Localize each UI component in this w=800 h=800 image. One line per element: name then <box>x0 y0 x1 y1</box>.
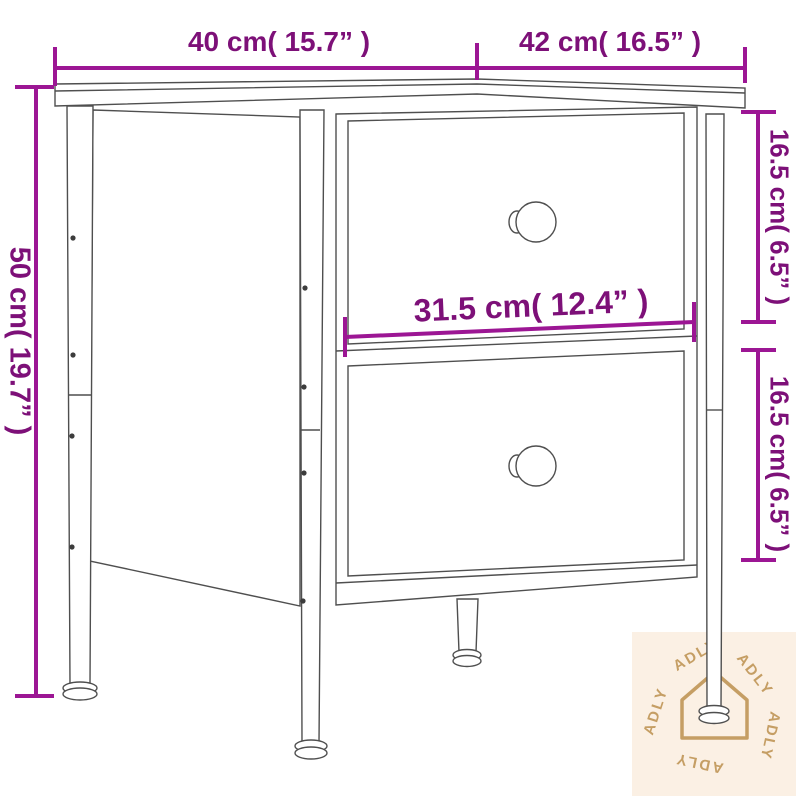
drawer-cabinet <box>336 107 697 605</box>
furniture-dimension-diagram: ADLY ADLY ADLY ADLY ADLY <box>0 0 800 800</box>
upper-drawer-height-dimension-label: 16.5 cm( 6.5” ) <box>764 129 795 305</box>
back-right-leg <box>453 599 481 667</box>
back-left-leg <box>63 106 97 700</box>
top-depth-dimension-label: 42 cm( 16.5” ) <box>519 26 701 58</box>
furniture-line-art <box>0 0 800 800</box>
front-right-leg <box>699 114 729 724</box>
top-panel <box>55 79 745 108</box>
overall-height-dimension-label: 50 cm( 19.7” ) <box>3 247 36 436</box>
left-side-panel <box>90 110 300 606</box>
lower-drawer-height-dimension-label: 16.5 cm( 6.5” ) <box>764 376 795 552</box>
top-width-dimension-label: 40 cm( 15.7” ) <box>188 26 370 58</box>
